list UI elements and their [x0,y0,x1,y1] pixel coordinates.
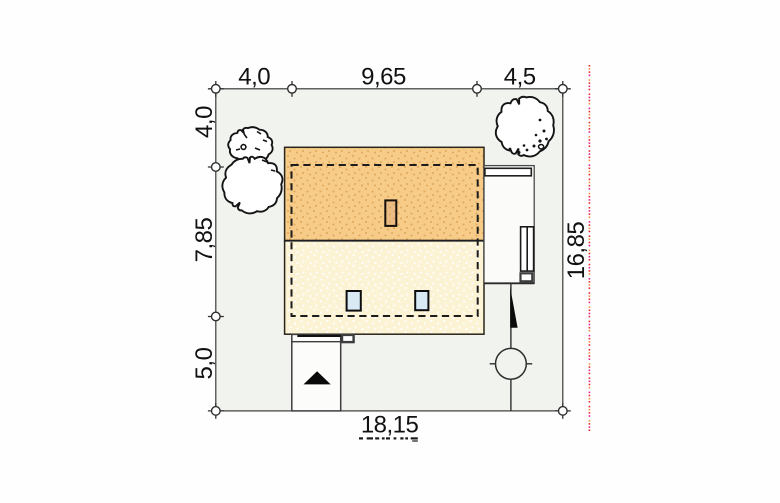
svg-text:9,65: 9,65 [361,63,406,90]
svg-text:4,0: 4,0 [238,63,270,90]
svg-text:4,0: 4,0 [191,106,218,138]
svg-text:7,85: 7,85 [191,217,218,262]
svg-text:5,0: 5,0 [191,347,218,379]
svg-text:18,15: 18,15 [361,412,419,439]
svg-text:16,85: 16,85 [563,222,590,280]
svg-text:4,5: 4,5 [504,63,536,90]
